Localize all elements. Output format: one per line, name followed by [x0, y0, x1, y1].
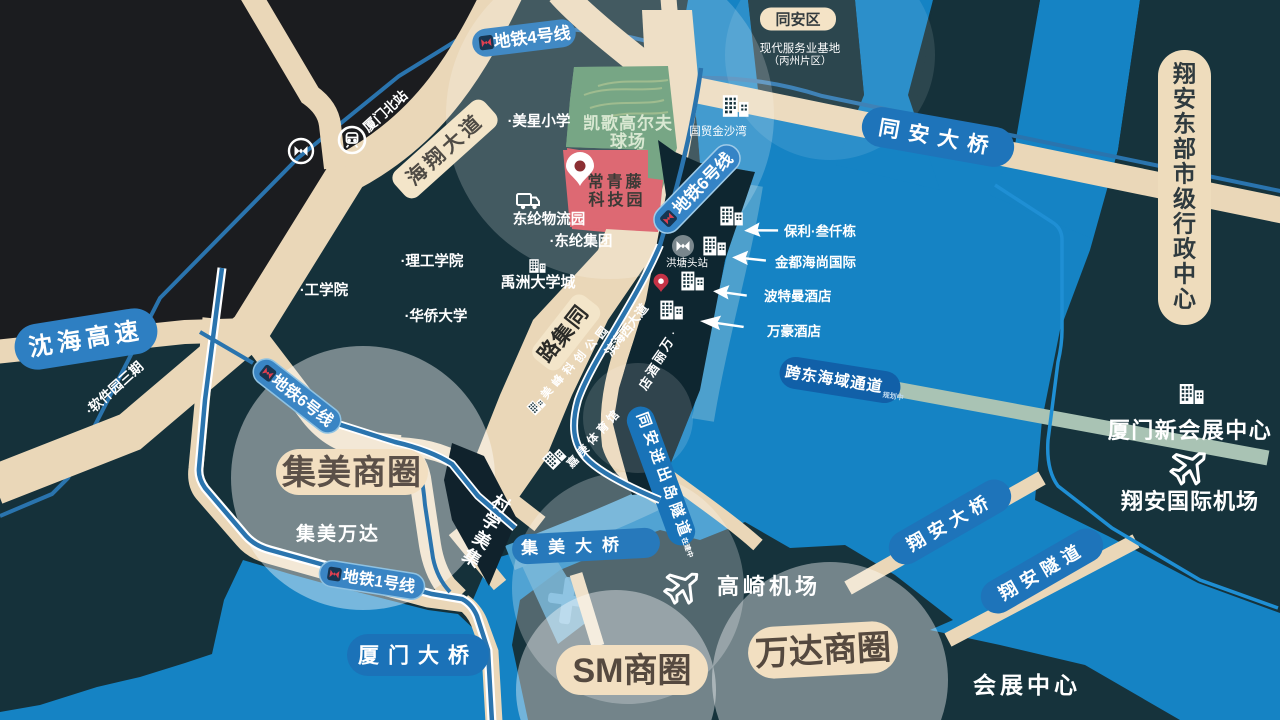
svg-text:·理工学院: ·理工学院: [401, 252, 464, 270]
svg-text:会展中心: 会展中心: [973, 672, 1081, 698]
svg-text:万豪酒店: 万豪酒店: [766, 323, 821, 339]
svg-text:·工学院: ·工学院: [300, 281, 349, 299]
svg-text:东纶物流园: 东纶物流园: [513, 210, 586, 228]
svg-text:科技园: 科技园: [588, 190, 645, 209]
svg-text:金都海尚国际: 金都海尚国际: [774, 254, 856, 270]
svg-text:厦门大桥: 厦门大桥: [358, 644, 478, 668]
svg-text:常青藤: 常青藤: [587, 172, 644, 191]
svg-text:·华侨大学: ·华侨大学: [405, 307, 468, 325]
svg-text:厦门新会展中心: 厦门新会展中心: [1108, 418, 1273, 443]
svg-text:（丙州片区）: （丙州片区）: [769, 54, 832, 67]
svg-text:保利·叁仟栋: 保利·叁仟栋: [783, 223, 856, 239]
svg-text:·美星小学: ·美星小学: [508, 112, 571, 130]
svg-text:国贸金沙湾: 国贸金沙湾: [689, 124, 747, 138]
svg-text:洪塘头站: 洪塘头站: [666, 256, 708, 269]
svg-text:同安区: 同安区: [775, 11, 820, 29]
svg-text:高崎机场: 高崎机场: [717, 574, 821, 599]
svg-text:集美大桥: 集美大桥: [520, 534, 630, 558]
svg-text:·东纶集团: ·东纶集团: [550, 232, 613, 250]
svg-text:SM商圈: SM商圈: [573, 652, 692, 690]
svg-text:禹洲大学城: 禹洲大学城: [500, 273, 575, 291]
svg-text:翔安国际机场: 翔安国际机场: [1120, 489, 1259, 514]
svg-text:万达商圈: 万达商圈: [754, 628, 892, 673]
svg-text:现代服务业基地: 现代服务业基地: [760, 41, 841, 55]
svg-text:波特曼酒店: 波特曼酒店: [764, 288, 832, 304]
svg-text:凯歌高尔夫: 凯歌高尔夫: [583, 113, 673, 133]
svg-text:翔安东部市级行政中心: 翔安东部市级行政中心: [1172, 61, 1197, 312]
svg-text:集美万达: 集美万达: [295, 522, 380, 545]
svg-text:集美商圈: 集美商圈: [281, 454, 422, 492]
svg-text:球场: 球场: [610, 132, 646, 151]
